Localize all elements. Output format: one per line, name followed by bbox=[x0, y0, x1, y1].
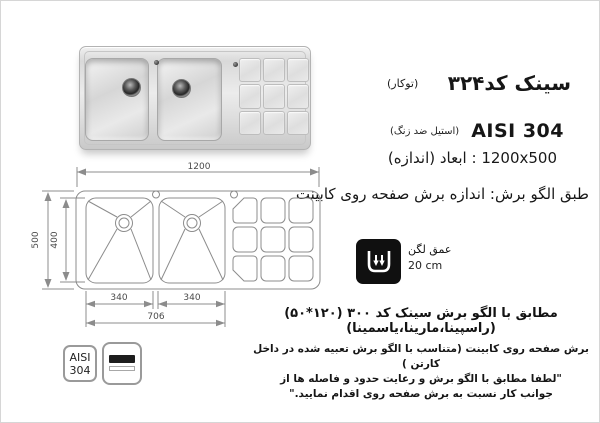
material-note: (استیل ضد زنگ) bbox=[390, 126, 459, 137]
dimensions-line: 1200x500 : ابعاد (اندازه) bbox=[388, 149, 557, 167]
sink-bowl-left bbox=[85, 58, 149, 141]
steel-sheet-dark-bar bbox=[109, 355, 135, 363]
dimension-bowl-left: 340 bbox=[86, 293, 153, 307]
dim-height-inner-label: 400 bbox=[50, 231, 60, 248]
drain-left bbox=[122, 78, 141, 97]
spec-sheet-page: (توکار) سینک کد۳۲۴ (استیل ضد زنگ) AISI 3… bbox=[0, 0, 600, 423]
bowl-depth-badge: عمق لگن 20 cm bbox=[356, 239, 451, 284]
dim-bowl-right-label: 340 bbox=[183, 293, 200, 303]
drawing-bowl-right bbox=[159, 198, 225, 283]
bowl-depth-value: 20 cm bbox=[408, 259, 451, 272]
faucet-hole-right bbox=[233, 62, 238, 67]
note-line-4: جوانب کار نسبت به برش صفحه روی اقدام نما… bbox=[247, 387, 595, 402]
dim-height-outer-label: 500 bbox=[31, 231, 41, 248]
dimension-height-inner: 400 bbox=[50, 198, 85, 282]
dim-width-label: 1200 bbox=[188, 162, 211, 172]
page-title: سینک کد۳۲۴ bbox=[448, 71, 571, 95]
material-grade: AISI 304 bbox=[471, 120, 564, 142]
steel-sheet-icon bbox=[102, 342, 142, 385]
sink-bowl-right bbox=[157, 58, 222, 141]
sink-photo bbox=[79, 46, 311, 150]
drawing-outline bbox=[76, 191, 320, 289]
steel-sheet-light-bar bbox=[109, 366, 135, 371]
drain-right bbox=[172, 79, 191, 98]
faucet-hole-left bbox=[154, 60, 159, 65]
aisi-badge-line2: 304 bbox=[70, 364, 91, 377]
drawing-drainboard-grid bbox=[233, 198, 313, 281]
drawing-faucet-hole-right bbox=[231, 191, 238, 198]
bowl-depth-texts: عمق لگن 20 cm bbox=[408, 239, 451, 272]
cut-pattern-line: طبق الگو برش: اندازه برش صفحه روی کابینت bbox=[296, 185, 589, 203]
dimension-bowls-total: 706 bbox=[86, 312, 225, 326]
dim-bowl-left-label: 340 bbox=[110, 293, 127, 303]
cutting-notes: مطابق با الگو برش سینک کد ۳۰۰ (۱۲۰*۵۰)(ر… bbox=[247, 306, 595, 402]
dim-bowls-total-label: 706 bbox=[147, 312, 164, 322]
dimension-width: 1200 bbox=[77, 162, 319, 187]
note-line-1: مطابق با الگو برش سینک کد ۳۰۰ (۱۲۰*۵۰)(ر… bbox=[247, 306, 595, 336]
material-row: (استیل ضد زنگ) AISI 304 bbox=[390, 120, 564, 142]
bowl-depth-label: عمق لگن bbox=[408, 243, 451, 256]
mount-type-note: (توکار) bbox=[387, 77, 418, 90]
title-row: (توکار) سینک کد۳۲۴ bbox=[387, 71, 571, 95]
aisi-badge-line1: AISI bbox=[70, 351, 91, 364]
note-line-2: برش صفحه روی کابینت (متناسب با الگو برش … bbox=[247, 342, 595, 372]
note-line-3: "لطفا مطابق با الگو برش و رعایت حدود و ف… bbox=[247, 372, 595, 387]
bowl-depth-icon bbox=[356, 239, 401, 284]
dimension-bowl-right: 340 bbox=[158, 293, 225, 307]
aisi-304-badge: AISI 304 bbox=[63, 345, 97, 382]
drawing-bowl-left bbox=[86, 198, 153, 283]
drawing-faucet-hole-left bbox=[153, 191, 160, 198]
drainboard-grid bbox=[239, 58, 309, 135]
